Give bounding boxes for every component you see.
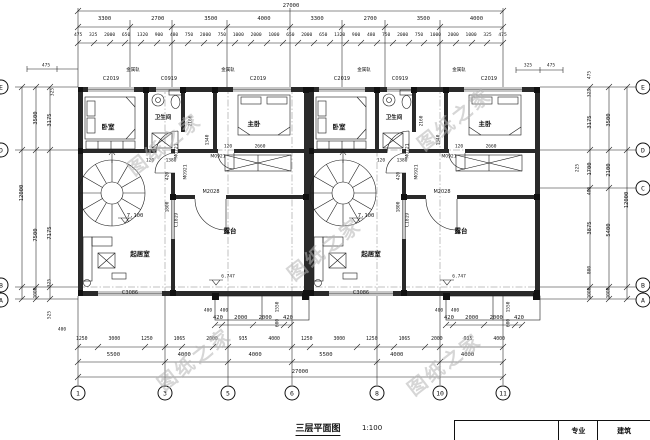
door-label-m2028: M2028 [433, 189, 450, 195]
dim-value: 750 [382, 33, 390, 38]
title-block-specialty-value: 建筑 [598, 421, 650, 440]
dim-value: 480 [170, 33, 178, 38]
dim-value: 2000 [490, 315, 503, 321]
dim-inner: 600 [276, 319, 281, 327]
dim-value: 2000 [251, 33, 262, 38]
dim-value: 420 [283, 315, 293, 321]
dim-value: 420 [444, 315, 454, 321]
room-label-bath: 卫生间 [386, 113, 403, 121]
dim-value: 900 [155, 33, 163, 38]
window-label-c0919: C0919 [392, 76, 408, 82]
grid-bubble-D: D [636, 143, 650, 158]
dim-row-bay-left: 42020002000420 [213, 315, 293, 321]
dim-left: 3175 [47, 113, 53, 126]
dim-value: 750 [185, 33, 193, 38]
dim-value: 2700 [131, 16, 184, 22]
dim-left: 1000 [34, 288, 39, 299]
dim-value: 1250 [366, 337, 378, 342]
dim-right: 225 [576, 164, 581, 172]
rail-note: 金属轨 [126, 67, 140, 73]
dim-value: 650 [319, 33, 327, 38]
dim-inner: 120 [455, 145, 463, 150]
window-label-c1819: C1819 [406, 213, 411, 228]
dim-inner: 600 [507, 319, 512, 327]
dim-value: 4000 [268, 337, 280, 342]
window-label-c0919: C0919 [161, 76, 177, 82]
dim-inner: 120 [377, 159, 385, 164]
dim-value: 2700 [344, 16, 397, 22]
grid-bubble-B: B [636, 278, 650, 293]
dim-inner: 1380 [397, 159, 408, 164]
dim-value: 480 [367, 33, 375, 38]
dim-value: 2000 [259, 315, 272, 321]
dim-inner: 1550 [507, 302, 512, 313]
dim-value: 650 [286, 33, 294, 38]
grid-bubble-8: 8 [370, 386, 385, 401]
dim-inner: 2660 [255, 145, 266, 150]
dim-inner: 2160 [420, 116, 425, 127]
dim-top-total: 27000 [283, 3, 300, 9]
grid-bubble-1: 1 [71, 386, 86, 401]
room-label-bath: 卫生间 [155, 113, 172, 121]
window-label-c1819: C1819 [175, 213, 180, 228]
dim-inner: 1380 [166, 159, 177, 164]
dim-value: 5500 [290, 352, 361, 358]
dim-value: 750 [218, 33, 226, 38]
dim-row-top-minor: 4753252000650132090048075020007501000200… [74, 33, 507, 38]
elevation-terrace: 6.747 [221, 275, 235, 280]
dim-left: 12000 [19, 185, 25, 202]
door-label-m0921: M0921 [415, 164, 420, 179]
window-label-c2019: C2019 [103, 76, 119, 82]
dim-value: 4000 [493, 337, 505, 342]
dim-value: 2000 [200, 33, 211, 38]
dim-value: 1320 [137, 33, 148, 38]
grid-bubble-A: A [636, 293, 650, 308]
door-label-m0921: M0921 [441, 155, 456, 160]
dim-left: 325 [51, 88, 56, 96]
dim-value: 3000 [109, 337, 121, 342]
room-label-bedroom: 卧室 [333, 121, 346, 131]
dim-value: 900 [352, 33, 360, 38]
dim-value: 2000 [431, 337, 443, 342]
dim-value: 2000 [104, 33, 115, 38]
rail-note: 金属轨 [221, 67, 235, 73]
rail-note: 金属轨 [357, 67, 371, 73]
dim-value: 3300 [78, 16, 131, 22]
grid-bubble-11: 11 [496, 386, 511, 401]
door-label-m0721: M0721 [175, 143, 180, 158]
dim-right-top: 325 [524, 64, 532, 69]
dim-value: 935 [464, 337, 473, 342]
window-label-c3086: C3086 [353, 290, 369, 296]
dim-left: 400 [58, 328, 66, 333]
dim-inner: 420 [166, 172, 171, 180]
dim-inner: 1800 [397, 202, 402, 213]
dim-value: 4000 [361, 352, 432, 358]
dim-right: 3175 [587, 115, 593, 128]
dim-value: 3300 [291, 16, 344, 22]
window-label-c2019: C2019 [334, 76, 350, 82]
dim-value: 1250 [141, 337, 153, 342]
dim-left: 325 [48, 279, 53, 287]
dim-right: 800 [588, 266, 593, 274]
window-label-c3086: C3086 [122, 290, 138, 296]
dim-value: 5500 [78, 352, 149, 358]
dim-inner: 400 [204, 309, 212, 314]
dim-inner: 1800 [166, 202, 171, 213]
dim-value: 4000 [450, 16, 503, 22]
dim-value: 2000 [465, 315, 478, 321]
dim-left: 525 [48, 311, 53, 319]
dim-value: 1320 [334, 33, 345, 38]
dim-inner: 400 [435, 309, 443, 314]
dim-value: 1065 [174, 337, 186, 342]
title-block: 专业 建筑 [454, 420, 650, 440]
grid-bubble-3: 3 [158, 386, 173, 401]
room-label-master: 主卧 [248, 118, 261, 128]
dim-right: 3500 [606, 113, 612, 126]
dim-value: 4000 [432, 352, 503, 358]
dim-value: 2000 [397, 33, 408, 38]
dim-value: 650 [122, 33, 130, 38]
rail-note: 金属轨 [452, 67, 466, 73]
dim-value: 2000 [448, 33, 459, 38]
dim-value: 475 [498, 33, 506, 38]
door-label-m2028: M2028 [202, 189, 219, 195]
grid-bubble-5: 5 [221, 386, 236, 401]
dim-row-bay-right: 42020002000420 [444, 315, 524, 321]
room-label-bedroom: 卧室 [102, 121, 115, 131]
dim-value: 4000 [149, 352, 220, 358]
grid-bubble-10: 10 [433, 386, 448, 401]
dim-right: 3875 [587, 221, 593, 234]
title-block-logo-cell [455, 421, 559, 440]
door-label-m0921: M0921 [184, 164, 189, 179]
dim-value: 325 [89, 33, 97, 38]
dim-value: 2000 [234, 315, 247, 321]
dim-row-top-major: 33002700350040003300270035004000 [78, 16, 503, 22]
grid-bubble-C: C [636, 181, 650, 196]
dim-value: 3500 [397, 16, 450, 22]
dim-value: 1065 [399, 337, 411, 342]
grid-bubble-E: E [636, 80, 650, 95]
drawing-sheet: 27000 33002700350040003300270035004000 4… [0, 0, 650, 440]
dim-value: 4000 [220, 352, 291, 358]
elevation-living: 7.100 [358, 213, 375, 219]
dim-row-bottom-minor: 1250300012501065200093540001250300012501… [76, 337, 505, 342]
dim-right: 1000 [607, 288, 612, 299]
dim-inner: 1340 [206, 135, 211, 146]
room-label-master: 主卧 [479, 118, 492, 128]
dim-left: 3500 [33, 111, 39, 124]
dim-value: 420 [514, 315, 524, 321]
dim-value: 1250 [301, 337, 313, 342]
door-label-m0921: M0921 [210, 155, 225, 160]
dim-inner: 1550 [276, 302, 281, 313]
dim-right: 2100 [606, 163, 612, 176]
dim-value: 1000 [466, 33, 477, 38]
drawing-scale: 1:100 [362, 424, 382, 432]
dim-value: 2000 [206, 337, 218, 342]
dim-value: 1000 [430, 33, 441, 38]
dim-inner: 400 [451, 309, 459, 314]
dim-value: 475 [74, 33, 82, 38]
room-label-terrace: 露台 [455, 225, 468, 235]
window-label-c2019: C2019 [250, 76, 266, 82]
grid-bubble-6: 6 [285, 386, 300, 401]
dim-row-bottom-major: 550040004000550040004000 [78, 352, 503, 358]
dim-value: 3000 [333, 337, 345, 342]
dim-inner: 2660 [486, 145, 497, 150]
dim-right: 325 [588, 89, 593, 97]
room-label-living: 起居室 [130, 248, 150, 258]
dim-inner: 120 [146, 159, 154, 164]
dim-inner: 1340 [437, 135, 442, 146]
dim-right: 1700 [587, 162, 593, 175]
elevation-terrace: 6.747 [452, 275, 466, 280]
dim-right: 1000 [588, 288, 593, 299]
dim-value: 750 [415, 33, 423, 38]
dim-left: 7175 [47, 226, 53, 239]
window-label-c2019: C2019 [481, 76, 497, 82]
dim-value: 1000 [233, 33, 244, 38]
door-label-m0721: M0721 [406, 143, 411, 158]
dim-inner: 2160 [189, 116, 194, 127]
dim-right: 5400 [606, 223, 612, 236]
dim-right-top: 475 [547, 64, 555, 69]
drawing-title: 三层平面图 [295, 421, 340, 436]
dim-inner: 420 [397, 172, 402, 180]
dim-value: 420 [213, 315, 223, 321]
dim-value: 325 [483, 33, 491, 38]
room-label-terrace: 露台 [224, 225, 237, 235]
dim-value: 935 [239, 337, 248, 342]
dim-value: 1250 [76, 337, 88, 342]
dim-inner: 400 [220, 309, 228, 314]
dim-value: 3500 [184, 16, 237, 22]
dim-inner: 120 [224, 145, 232, 150]
dim-left: 475 [42, 64, 50, 69]
elevation-living: 7.100 [127, 213, 144, 219]
dim-value: 1000 [268, 33, 279, 38]
dim-bottom-total: 27000 [292, 369, 309, 375]
dim-value: 4000 [237, 16, 290, 22]
room-label-living: 起居室 [361, 248, 381, 258]
dim-left: 7500 [33, 228, 39, 241]
dim-right: 475 [588, 71, 593, 79]
dim-right: 400 [588, 187, 593, 195]
title-block-specialty-label: 专业 [559, 421, 598, 440]
dim-right: 12000 [624, 192, 630, 209]
dim-value: 2000 [301, 33, 312, 38]
